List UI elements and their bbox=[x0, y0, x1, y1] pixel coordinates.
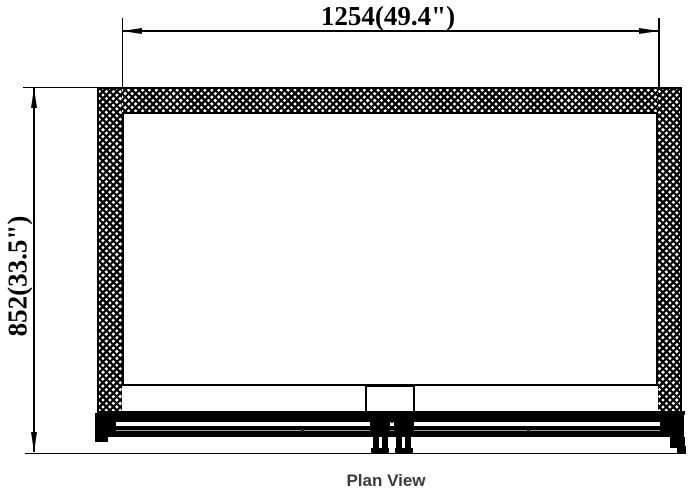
wall-inner-border bbox=[122, 112, 658, 386]
width-dim-arrow-right bbox=[639, 28, 659, 34]
height-extension-line-bottom bbox=[25, 453, 686, 455]
width-dimension-line bbox=[122, 30, 659, 32]
height-dimension-label: 852(33.5") bbox=[3, 216, 34, 337]
left-door-handle-mount bbox=[370, 414, 390, 435]
door-track-groove bbox=[106, 430, 676, 432]
right-track-bracket bbox=[660, 413, 684, 437]
width-dimension-label: 1254(49.4") bbox=[321, 1, 455, 32]
door-panel-joint-right bbox=[527, 429, 530, 432]
center-mullion bbox=[365, 385, 415, 413]
door-panel-joint-left bbox=[301, 429, 304, 432]
drawing-caption: Plan View bbox=[346, 471, 425, 491]
plan-view-drawing: 1254(49.4") 852(33.5") Plan View bbox=[0, 0, 692, 495]
height-dim-arrow-bottom bbox=[31, 432, 37, 452]
width-dim-arrow-left bbox=[122, 28, 142, 34]
left-track-bracket-foot bbox=[95, 424, 108, 442]
door-gap-mark bbox=[388, 417, 396, 423]
right-door-handle-mount bbox=[394, 414, 414, 435]
height-dim-arrow-top bbox=[31, 88, 37, 108]
height-dimension-line bbox=[33, 88, 35, 452]
